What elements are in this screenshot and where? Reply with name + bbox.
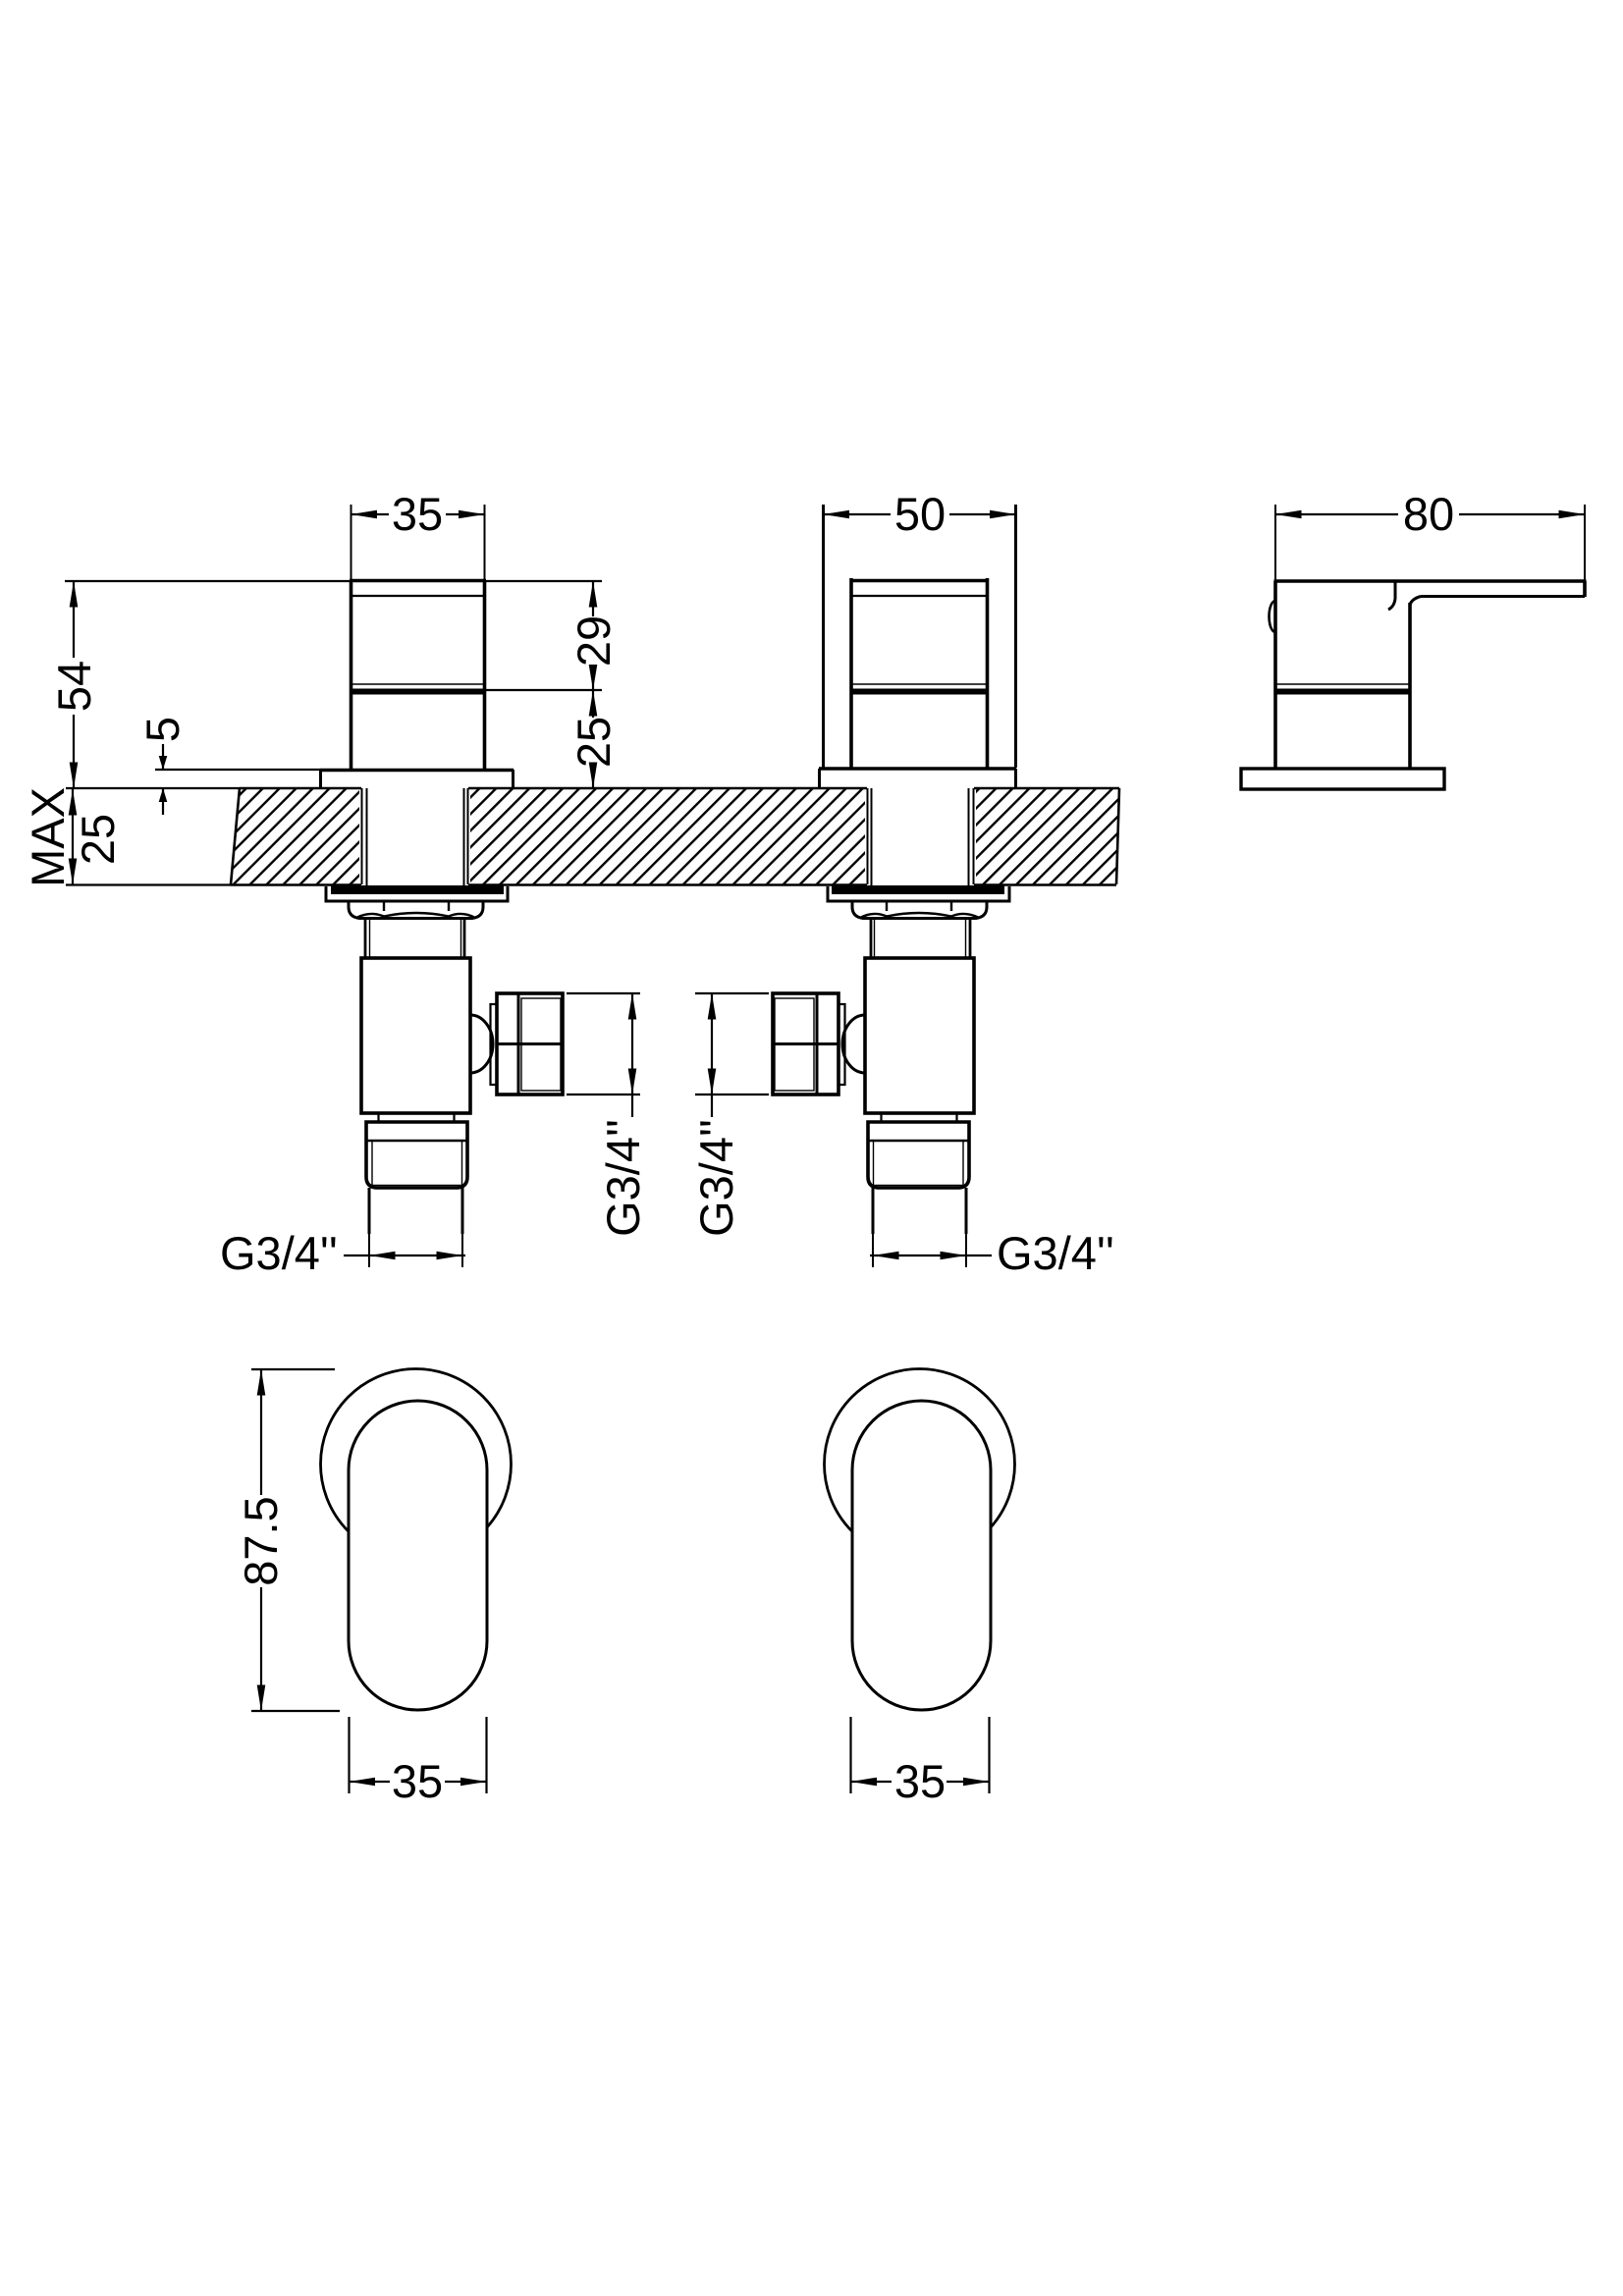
svg-text:G3/4'': G3/4'' bbox=[690, 1119, 742, 1237]
svg-text:G3/4'': G3/4'' bbox=[997, 1227, 1114, 1279]
svg-text:MAX: MAX bbox=[22, 787, 74, 887]
svg-text:G3/4'': G3/4'' bbox=[220, 1227, 338, 1279]
svg-text:35: 35 bbox=[392, 488, 443, 540]
svg-text:80: 80 bbox=[1403, 488, 1454, 540]
svg-text:G3/4'': G3/4'' bbox=[597, 1119, 649, 1237]
svg-text:29: 29 bbox=[568, 615, 620, 667]
svg-text:50: 50 bbox=[894, 488, 946, 540]
svg-text:35: 35 bbox=[894, 1755, 946, 1807]
svg-text:35: 35 bbox=[392, 1755, 443, 1807]
svg-text:25: 25 bbox=[72, 814, 124, 865]
svg-text:5: 5 bbox=[136, 717, 189, 742]
svg-text:25: 25 bbox=[568, 717, 620, 768]
svg-text:54: 54 bbox=[48, 661, 100, 712]
svg-text:87.5: 87.5 bbox=[235, 1496, 287, 1585]
